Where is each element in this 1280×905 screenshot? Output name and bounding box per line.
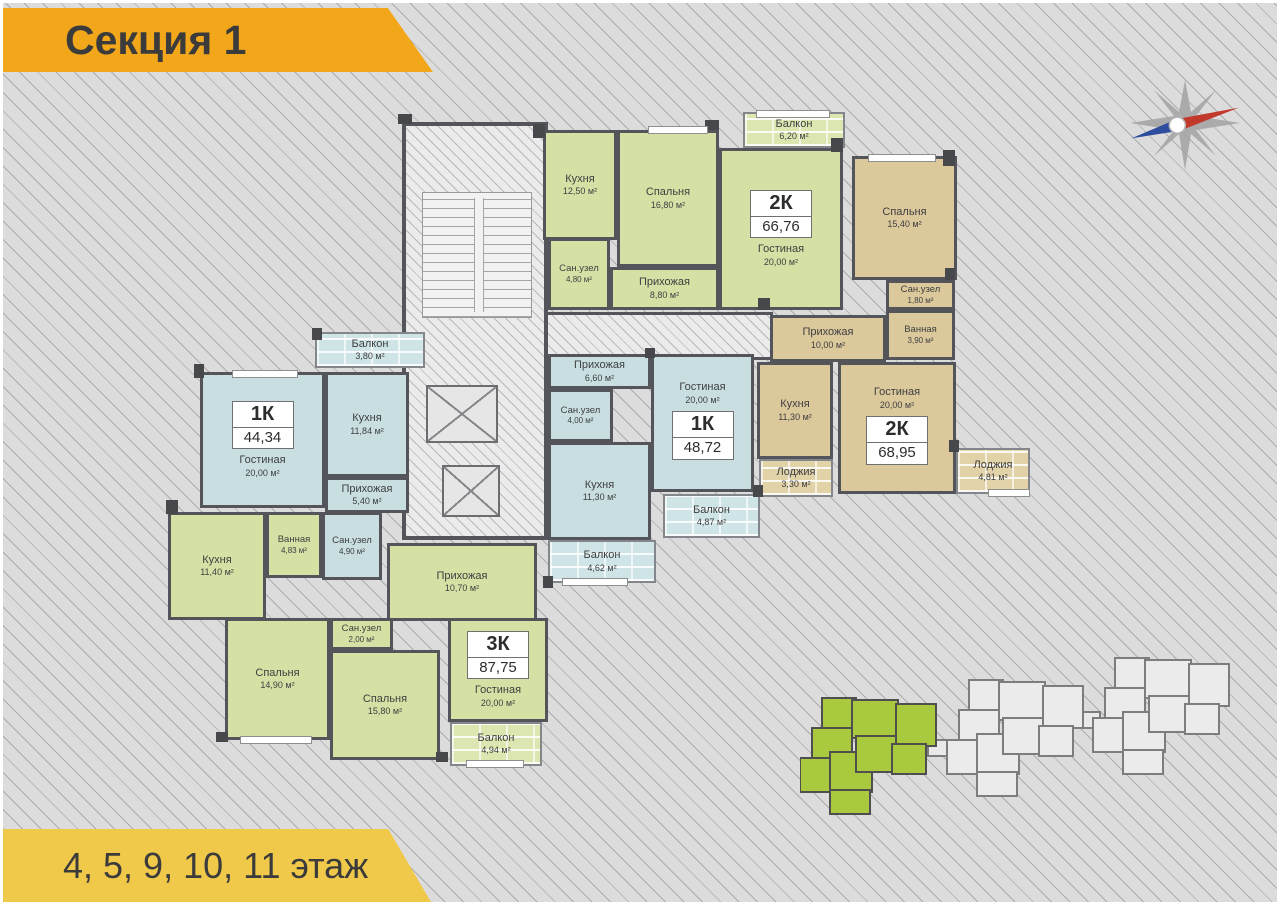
apartment-type: 2К xyxy=(751,191,811,217)
section-banner: Секция 1 xyxy=(3,8,433,72)
floors-label: 4, 5, 9, 10, 11 этаж xyxy=(63,845,368,887)
room-bathroom: Сан.узел 2,00 м² xyxy=(330,618,393,650)
room-living: Гостиная 20,00 м² 1К 48,72 xyxy=(651,354,754,492)
room-bath: Ванная 4,83 м² xyxy=(266,512,322,578)
column xyxy=(645,348,655,358)
room-hallway: Прихожая 10,00 м² xyxy=(770,315,886,362)
column xyxy=(758,298,770,310)
apartment-area: 68,95 xyxy=(867,443,927,464)
apartment-area: 87,75 xyxy=(468,658,528,679)
site-plan xyxy=(800,640,1270,835)
window xyxy=(240,736,312,744)
room-living: 2К 66,76 Гостиная 20,00 м² xyxy=(719,148,843,310)
room-loggia: Лоджия 4,81 м² xyxy=(956,448,1030,494)
column xyxy=(216,732,228,742)
room-bathroom: Сан.узел 1,80 м² xyxy=(886,280,955,310)
elevator-shaft xyxy=(426,385,498,443)
elevator-shaft xyxy=(442,465,500,517)
column xyxy=(753,485,763,497)
column xyxy=(194,364,204,378)
column xyxy=(533,124,545,138)
section-title: Секция 1 xyxy=(65,17,246,64)
apartment-type: 1К xyxy=(233,402,293,428)
room-living: Гостиная 20,00 м² 2К 68,95 xyxy=(838,362,956,494)
window xyxy=(648,126,708,134)
apartment-area: 44,34 xyxy=(233,428,293,449)
room-bedroom: Спальня 15,80 м² xyxy=(330,650,440,760)
apartment-badge[interactable]: 2К 66,76 xyxy=(750,190,812,239)
room-hallway: Прихожая 8,80 м² xyxy=(610,267,719,310)
apartment-type: 3К xyxy=(468,632,528,658)
room-living: 1К 44,34 Гостиная 20,00 м² xyxy=(200,372,325,508)
room-bedroom: Спальня 16,80 м² xyxy=(617,130,719,267)
column xyxy=(943,150,955,166)
room-kitchen: Кухня 12,50 м² xyxy=(543,130,617,240)
room-living: 3К 87,75 Гостиная 20,00 м² xyxy=(448,618,548,722)
room-bath: Ванная 3,90 м² xyxy=(886,310,955,360)
apartment-badge[interactable]: 2К 68,95 xyxy=(866,416,928,465)
room-kitchen: Кухня 11,30 м² xyxy=(548,442,651,540)
site-plan-section-1-highlighted[interactable] xyxy=(800,698,936,814)
column xyxy=(945,268,955,280)
room-bathroom: Сан.узел 4,90 м² xyxy=(322,512,382,580)
site-plan-section-2[interactable] xyxy=(947,680,1083,796)
room-bathroom: Сан.узел 4,00 м² xyxy=(548,389,613,442)
column xyxy=(949,440,959,452)
apartment-type: 2К xyxy=(867,417,927,443)
column xyxy=(831,138,843,152)
room-bedroom: Спальня 15,40 м² xyxy=(852,156,957,280)
floor-plan-page: Секция 1 4, 5, 9, 10, 11 этаж Кухня 12,5… xyxy=(0,0,1280,905)
room-bathroom: Сан.узел 4,80 м² xyxy=(548,238,610,310)
window xyxy=(868,154,936,162)
stair-core xyxy=(402,122,548,540)
window xyxy=(562,578,628,586)
floors-banner: 4, 5, 9, 10, 11 этаж xyxy=(3,829,431,902)
column xyxy=(436,752,448,762)
column xyxy=(166,500,178,514)
room-balcony: Балкон 3,80 м² xyxy=(315,332,425,368)
room-balcony: Балкон 4,87 м² xyxy=(663,494,760,538)
window xyxy=(988,489,1030,497)
room-balcony: Балкон 4,62 м² xyxy=(548,540,656,583)
apartment-badge[interactable]: 3К 87,75 xyxy=(467,631,529,680)
site-plan-section-3[interactable] xyxy=(1093,658,1229,774)
room-hallway: Прихожая 5,40 м² xyxy=(325,477,409,513)
apartment-badge[interactable]: 1К 48,72 xyxy=(672,411,734,460)
room-hallway: Прихожая 6,60 м² xyxy=(548,354,651,389)
column xyxy=(312,328,322,340)
room-bedroom: Спальня 14,90 м² xyxy=(225,618,330,740)
window xyxy=(232,370,298,378)
apartment-badge[interactable]: 1К 44,34 xyxy=(232,401,294,450)
apartment-area: 48,72 xyxy=(673,438,733,459)
room-kitchen: Кухня 11,84 м² xyxy=(325,372,409,477)
column xyxy=(543,576,553,588)
room-hallway: Прихожая 10,70 м² xyxy=(387,543,537,621)
room-kitchen: Кухня 11,40 м² xyxy=(168,512,266,620)
column xyxy=(398,114,412,124)
window xyxy=(466,760,524,768)
apartment-area: 66,76 xyxy=(751,217,811,238)
room-loggia: Лоджия 3,30 м² xyxy=(759,459,833,497)
compass-icon xyxy=(1128,78,1243,173)
common-hallway xyxy=(545,312,773,360)
window xyxy=(756,110,830,118)
staircase xyxy=(422,192,532,318)
apartment-type: 1К xyxy=(673,412,733,438)
room-kitchen: Кухня 11,30 м² xyxy=(757,362,833,459)
